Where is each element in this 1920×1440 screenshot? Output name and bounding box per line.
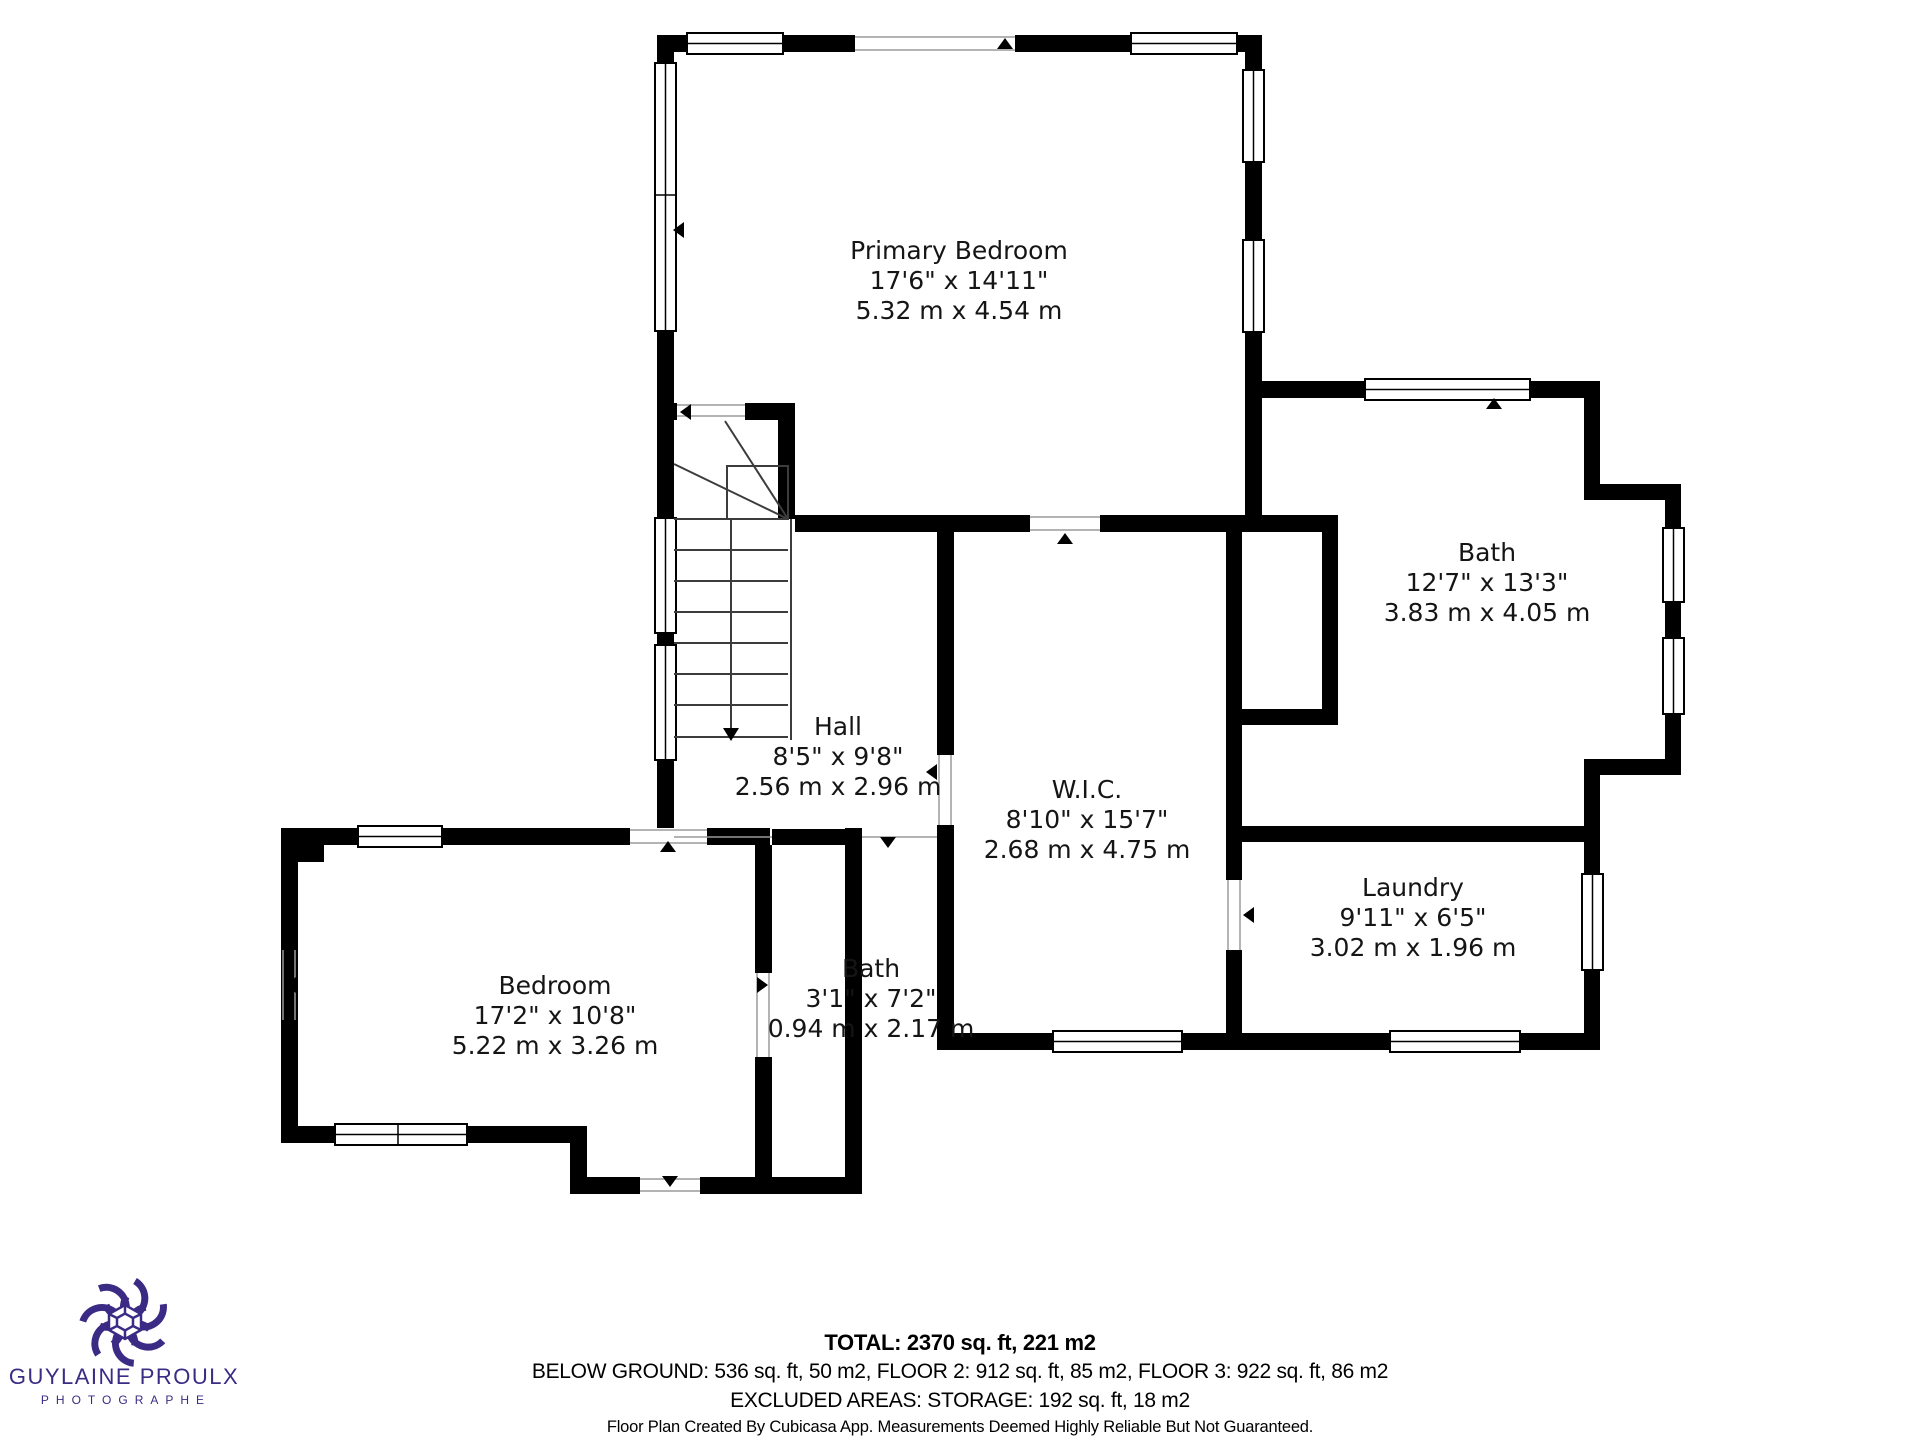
total-area: TOTAL: 2370 sq. ft, 221 m2: [532, 1328, 1388, 1357]
room-name: Primary Bedroom: [850, 236, 1068, 266]
flower-icon: [81, 1281, 170, 1368]
room-size-imperial: 17'2" x 10'8": [452, 1001, 659, 1031]
room-name: Laundry: [1310, 873, 1517, 903]
room-size-metric: 0.94 m x 2.17 m: [768, 1014, 975, 1044]
photographer-logo: [30, 1272, 250, 1432]
room-label-primary-bedroom: Primary Bedroom 17'6" x 14'11" 5.32 m x …: [850, 236, 1068, 326]
area-summary: TOTAL: 2370 sq. ft, 221 m2 BELOW GROUND:…: [532, 1328, 1388, 1415]
room-size-imperial: 8'5" x 9'8": [735, 742, 942, 772]
arrow-down-icon: [880, 837, 896, 848]
room-name: Bedroom: [452, 971, 659, 1001]
room-size-imperial: 12'7" x 13'3": [1384, 568, 1591, 598]
room-name: W.I.C.: [984, 775, 1191, 805]
door-openings: [283, 37, 1240, 1191]
room-size-imperial: 17'6" x 14'11": [850, 266, 1068, 296]
room-size-metric: 3.02 m x 1.96 m: [1310, 933, 1517, 963]
room-size-imperial: 3'1" x 7'2": [768, 984, 975, 1014]
logo-name: GUYLAINE PROULX: [9, 1364, 239, 1390]
room-size-metric: 3.83 m x 4.05 m: [1384, 598, 1591, 628]
room-size-imperial: 8'10" x 15'7": [984, 805, 1191, 835]
room-size-imperial: 9'11" x 6'5": [1310, 903, 1517, 933]
logo-subtitle: PHOTOGRAPHE: [41, 1393, 211, 1407]
excluded-areas: EXCLUDED AREAS: STORAGE: 192 sq. ft, 18 …: [532, 1386, 1388, 1415]
room-size-metric: 2.68 m x 4.75 m: [984, 835, 1191, 865]
staircase: [674, 421, 791, 740]
room-size-metric: 2.56 m x 2.96 m: [735, 772, 942, 802]
room-name: Bath: [768, 954, 975, 984]
disclaimer-note: Floor Plan Created By Cubicasa App. Meas…: [607, 1418, 1313, 1437]
floor-plan-drawing: [0, 0, 1920, 1440]
room-size-metric: 5.32 m x 4.54 m: [850, 296, 1068, 326]
floor-areas: BELOW GROUND: 536 sq. ft, 50 m2, FLOOR 2…: [532, 1357, 1388, 1386]
room-label-bath-small: Bath 3'1" x 7'2" 0.94 m x 2.17 m: [768, 954, 975, 1044]
arrow-up-icon: [997, 38, 1013, 49]
floor-plan-page: Primary Bedroom 17'6" x 14'11" 5.32 m x …: [0, 0, 1920, 1440]
room-label-bath: Bath 12'7" x 13'3" 3.83 m x 4.05 m: [1384, 538, 1591, 628]
room-name: Bath: [1384, 538, 1591, 568]
room-label-hall: Hall 8'5" x 9'8" 2.56 m x 2.96 m: [735, 712, 942, 802]
room-name: Hall: [735, 712, 942, 742]
room-label-laundry: Laundry 9'11" x 6'5" 3.02 m x 1.96 m: [1310, 873, 1517, 963]
room-size-metric: 5.22 m x 3.26 m: [452, 1031, 659, 1061]
arrow-down-icon: [662, 1176, 678, 1187]
room-label-bedroom: Bedroom 17'2" x 10'8" 5.22 m x 3.26 m: [452, 971, 659, 1061]
arrow-left-icon: [1243, 907, 1254, 923]
arrow-left-icon: [680, 404, 691, 420]
arrow-up-icon: [1057, 533, 1073, 544]
room-label-wic: W.I.C. 8'10" x 15'7" 2.68 m x 4.75 m: [984, 775, 1191, 865]
arrow-right-icon: [757, 977, 768, 993]
